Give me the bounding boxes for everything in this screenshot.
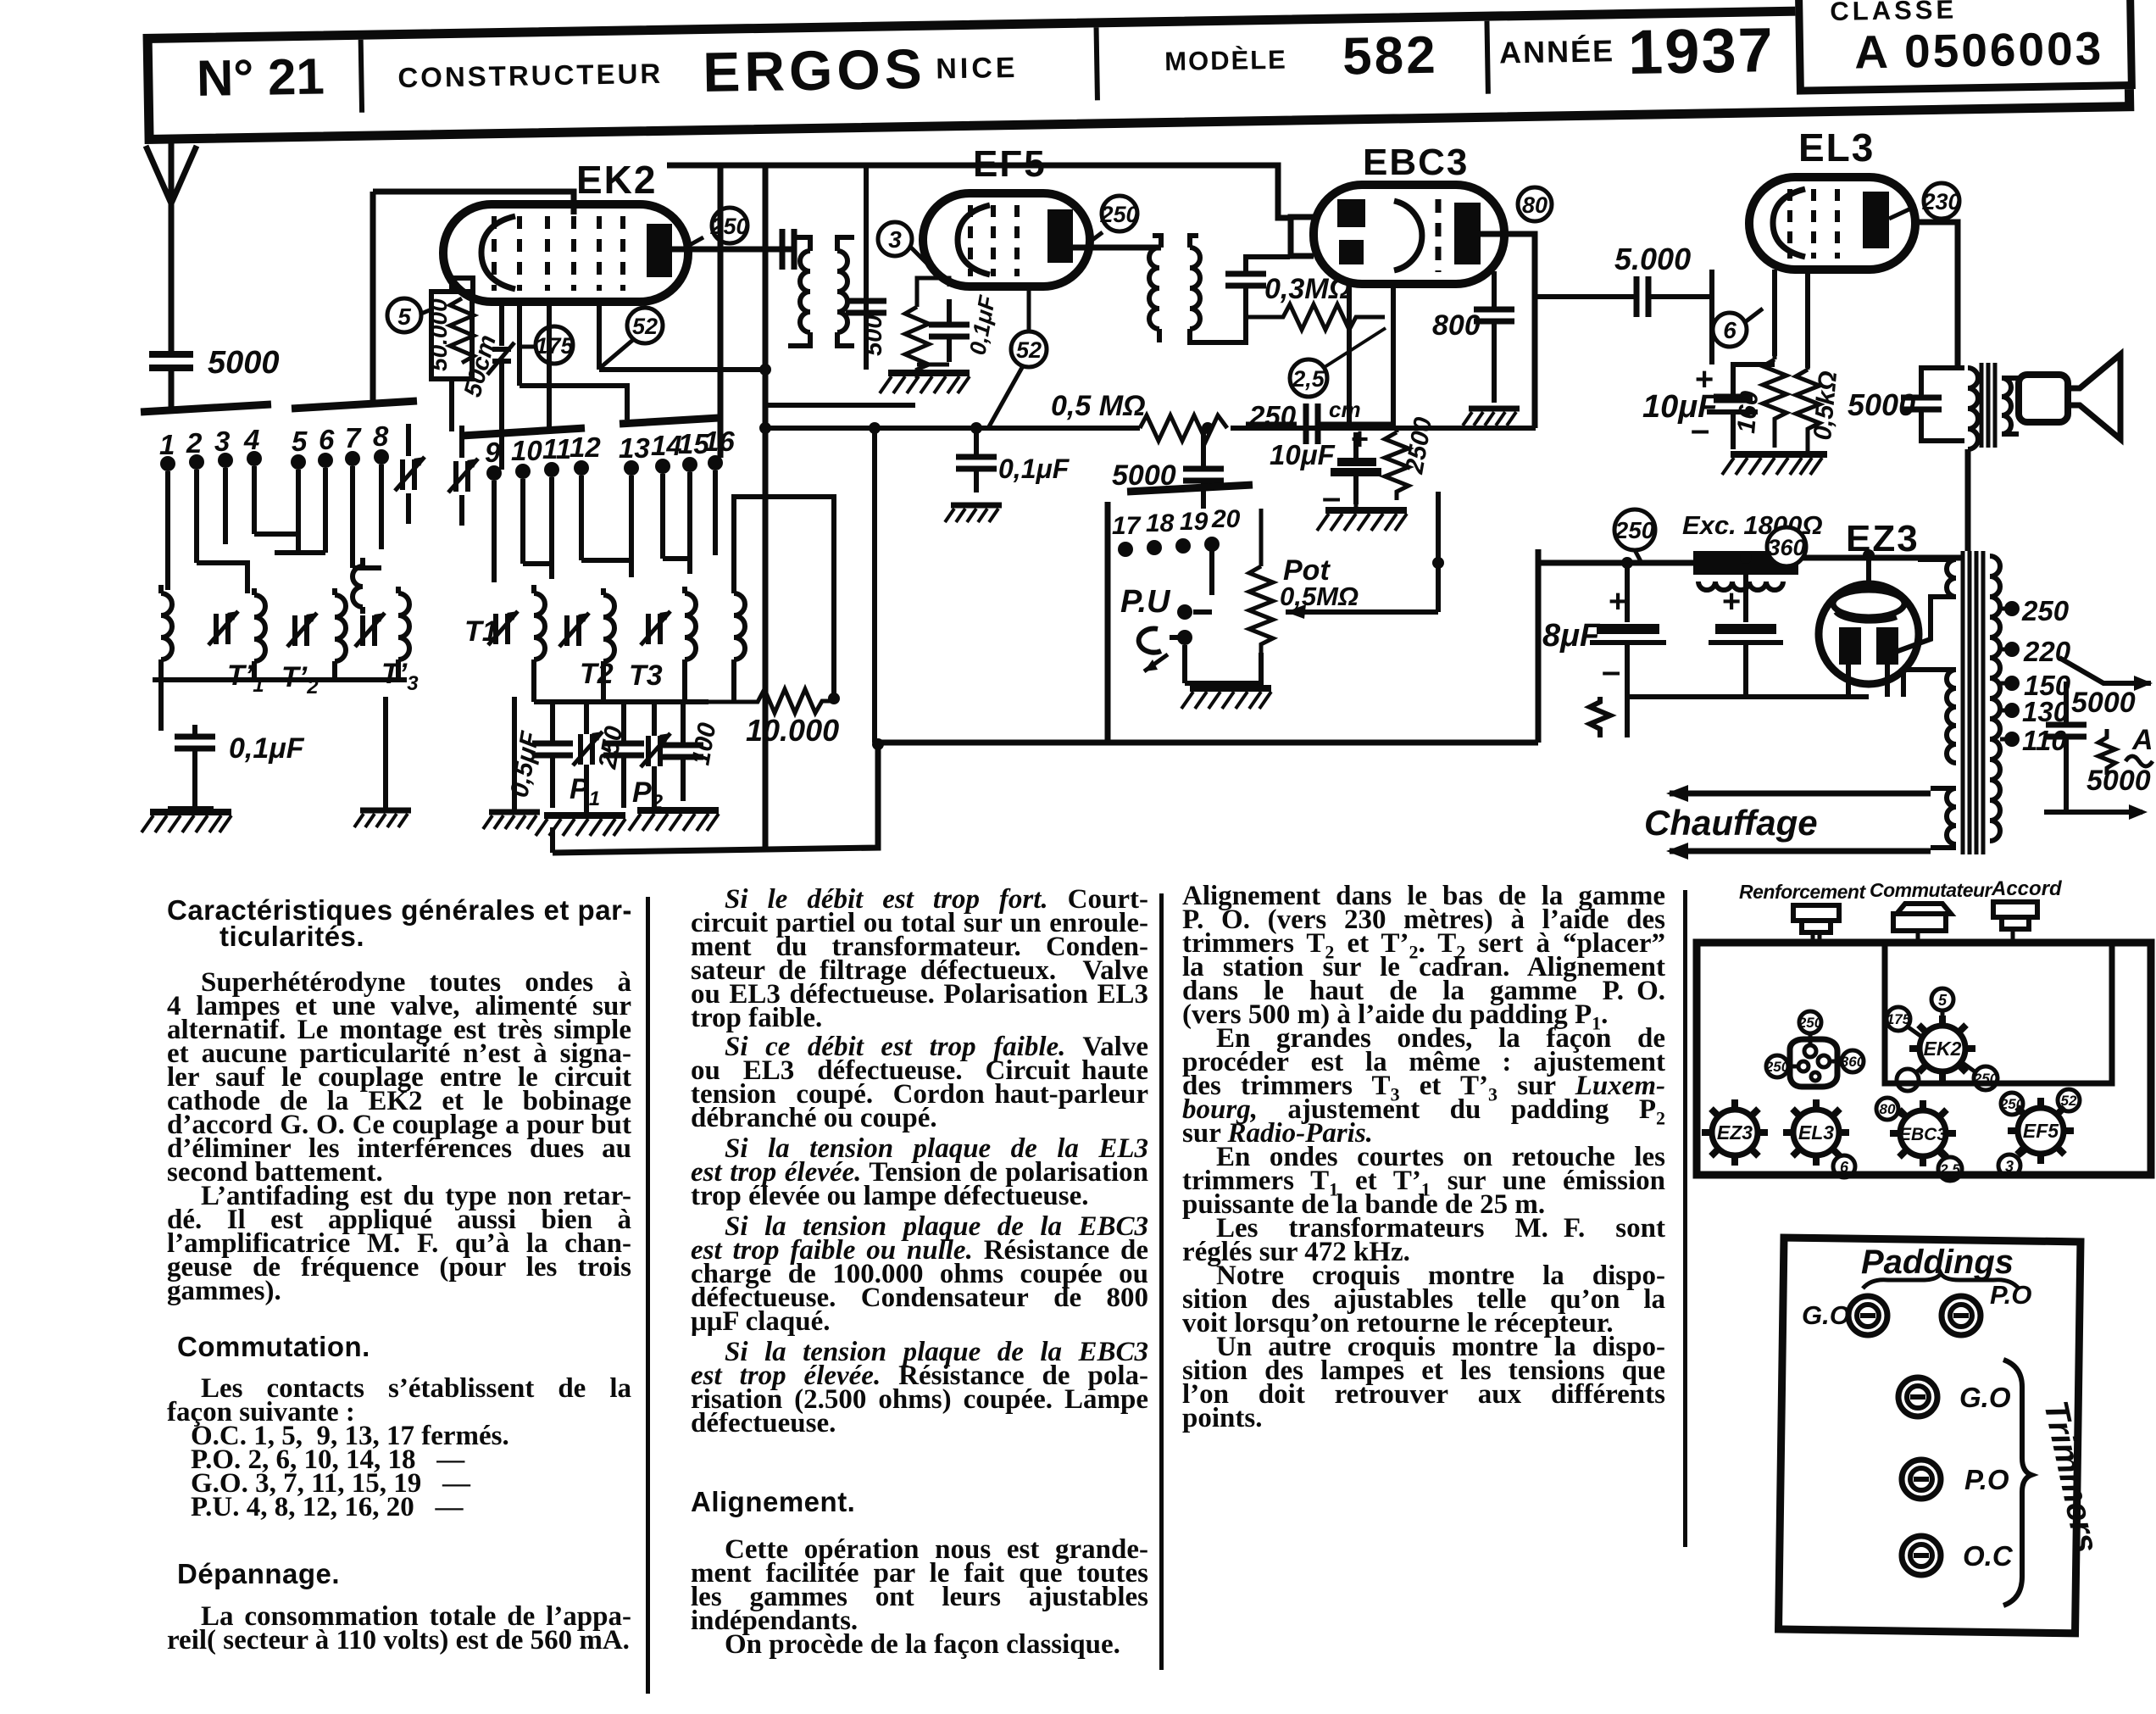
svg-text:G.O: G.O bbox=[1802, 1300, 1850, 1330]
svg-text:P.O: P.O bbox=[1990, 1280, 2031, 1310]
svg-text:175: 175 bbox=[1886, 1011, 1911, 1027]
svg-text:250: 250 bbox=[1764, 1059, 1790, 1075]
svg-text:6: 6 bbox=[1840, 1159, 1849, 1176]
svg-text:Accord: Accord bbox=[1991, 877, 2063, 900]
svg-text:EF5: EF5 bbox=[2023, 1120, 2059, 1142]
svg-text:EL3: EL3 bbox=[1798, 1121, 1834, 1144]
svg-text:Renforcement: Renforcement bbox=[1739, 881, 1866, 903]
svg-text:EZ3: EZ3 bbox=[1717, 1121, 1753, 1144]
svg-text:5: 5 bbox=[1938, 992, 1948, 1009]
svg-text:3: 3 bbox=[2005, 1158, 2014, 1175]
svg-text:EBC3: EBC3 bbox=[1899, 1125, 1947, 1144]
svg-text:G.O: G.O bbox=[1959, 1382, 2011, 1413]
svg-text:2.5: 2.5 bbox=[1939, 1161, 1960, 1177]
svg-text:Trimmers: Trimmers bbox=[2037, 1398, 2105, 1556]
svg-text:250: 250 bbox=[1973, 1071, 1998, 1087]
svg-text:250: 250 bbox=[1798, 1015, 1823, 1031]
svg-text:360: 360 bbox=[1841, 1054, 1865, 1070]
svg-text:250: 250 bbox=[1999, 1096, 2025, 1112]
svg-text:52: 52 bbox=[2061, 1093, 2077, 1109]
svg-text:Commutateur: Commutateur bbox=[1870, 879, 1993, 901]
svg-text:80: 80 bbox=[1880, 1101, 1896, 1117]
svg-text:O.C: O.C bbox=[1963, 1540, 2014, 1572]
svg-text:P.O: P.O bbox=[1964, 1464, 2009, 1495]
svg-text:EK2: EK2 bbox=[1924, 1038, 1962, 1060]
